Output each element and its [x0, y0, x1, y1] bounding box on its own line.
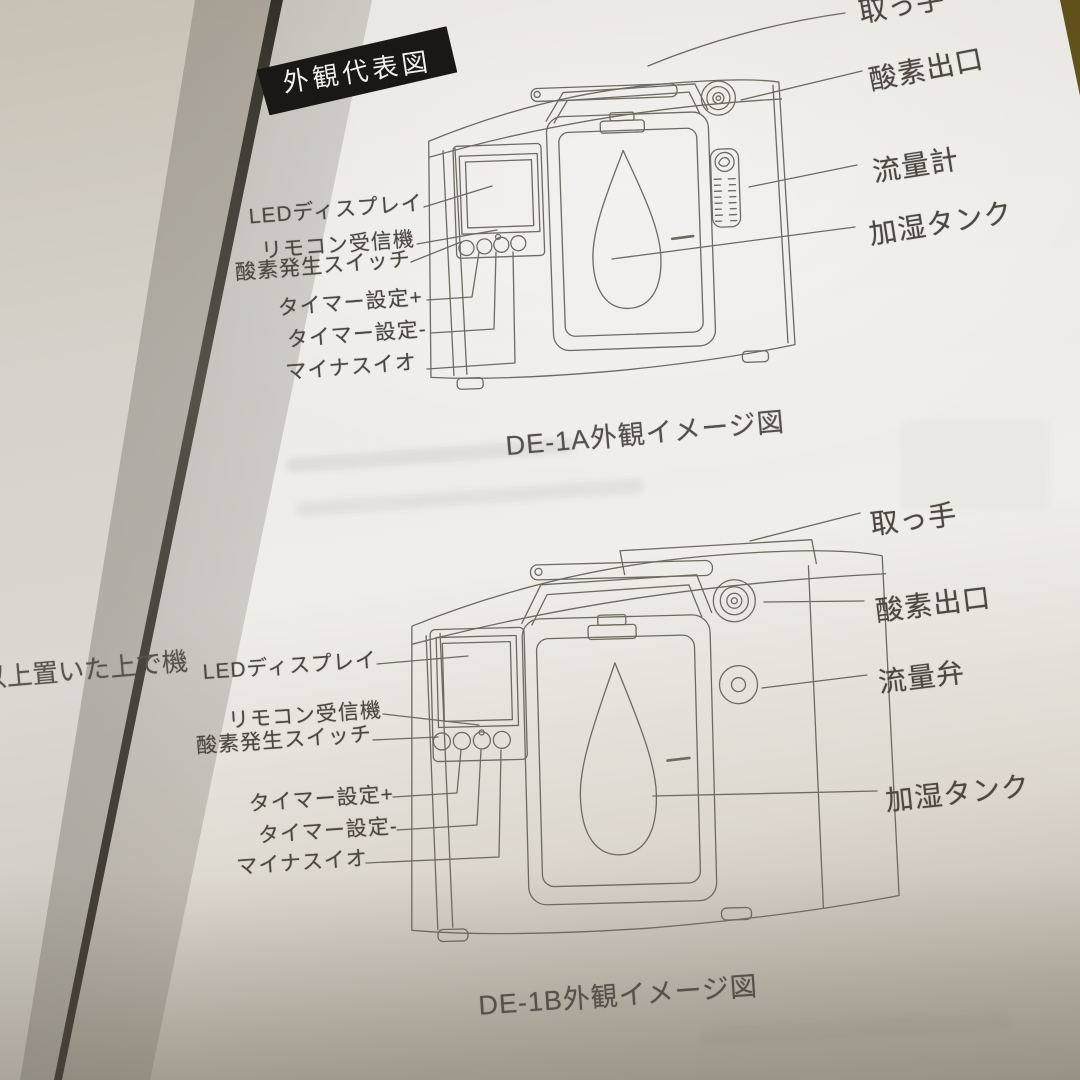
manual-page-photo: 以上置いた上で機 外観代表図 — [0, 0, 1080, 1080]
leader-lines-diagram-a — [411, 13, 862, 369]
leader-lines-diagram-b — [366, 513, 877, 863]
